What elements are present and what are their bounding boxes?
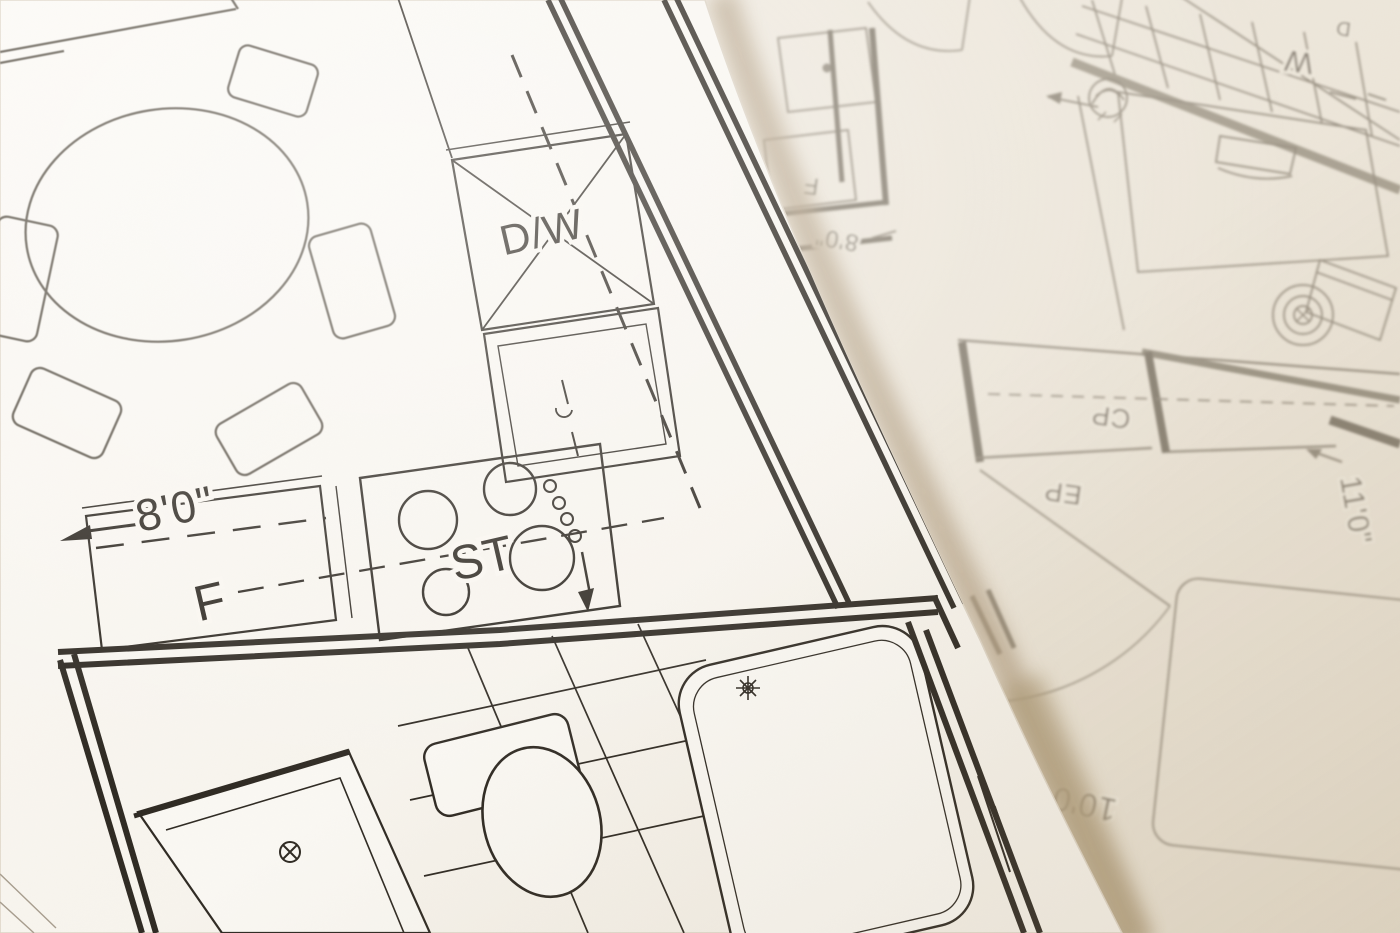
photo-canvas: W D [0,0,1400,933]
blueprint-photo: W D [0,0,1400,933]
paper-grain-overlay [0,0,1400,933]
